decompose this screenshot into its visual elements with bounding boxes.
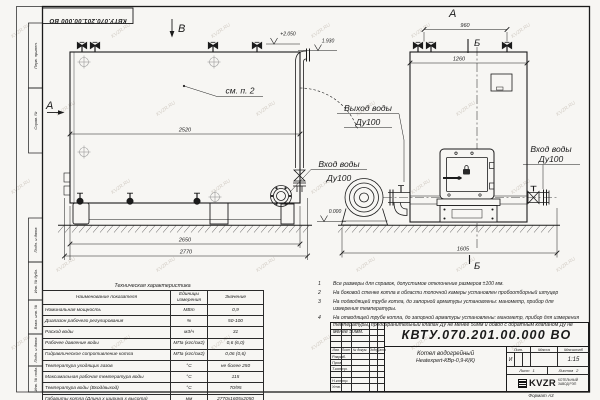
ground-hatch-line <box>177 226 183 233</box>
param-name: Температура уходящих газов <box>43 360 171 371</box>
tech-table-title: Техническая характеристика <box>42 283 263 289</box>
product-model: Heatexpert-КВр-0,9-К(К) <box>385 358 506 364</box>
ground-hatch-line <box>506 226 512 233</box>
center-mark-icon <box>78 146 91 159</box>
logo-text: KVZR <box>529 378 556 389</box>
sheet-cell: Лист 1 <box>507 367 548 375</box>
ground-hatch-line <box>429 226 435 233</box>
param-unit: °С <box>171 372 208 383</box>
ground-hatch-line <box>219 226 225 233</box>
ground-hatch-line <box>121 226 127 233</box>
ground-hatch-line <box>205 226 211 233</box>
ground-hatch-line <box>86 226 92 233</box>
inlet-front-label-line1: Вход воды <box>530 144 572 154</box>
tech-table: Наименование показателя Единицы измерени… <box>42 290 264 400</box>
elevation-ground-text: 0.000 <box>329 209 342 215</box>
furnace-door <box>440 149 494 199</box>
ground-hatch-line <box>450 226 456 233</box>
boiler-side-view <box>64 42 358 224</box>
ground-hatch-line <box>541 226 547 233</box>
table-row: Диапазон рабочего регулирования%50-100 <box>43 316 264 327</box>
doc-number: КВТУ.070.201.00.000 ВО <box>402 328 572 342</box>
outlet-label-line1: Выход воды <box>344 103 393 113</box>
ground-hatch-line <box>373 226 379 233</box>
lit-cell-3 <box>523 353 531 367</box>
table-row: Габариты котла (Длина х ширина х высота)… <box>43 394 264 400</box>
dim-2650: 2650 <box>178 238 192 244</box>
outlet-pipe <box>293 49 310 193</box>
param-value: не более 250 <box>208 360 264 371</box>
margin-stamps: Перв. примен. Справ. № Подп. и дата Инв.… <box>33 42 38 391</box>
elevation-outlet-text: 1.930 <box>322 39 335 45</box>
ground-hatch-line <box>156 226 162 233</box>
row-prov: Пров. <box>332 360 342 365</box>
param-name: Рабочее давление воды <box>43 338 171 349</box>
grid-line <box>331 329 384 330</box>
param-unit: °С <box>171 383 208 394</box>
sheet-label: Лист <box>519 368 529 373</box>
safety-valve-icon <box>90 42 99 52</box>
dim-2770: 2770 <box>179 250 193 256</box>
note-item: 3 На подводящей трубе котла, до запорной… <box>318 299 580 313</box>
row-utv: Утв. <box>332 384 341 389</box>
inlet-flange <box>271 186 292 207</box>
table-row: Максимальная рабочая температура воды°С1… <box>43 372 264 383</box>
param-unit: мм <box>171 394 208 400</box>
dim-960: 960 <box>460 23 470 29</box>
col-list: Лист <box>341 348 351 352</box>
param-value: 0,06 (0,6) <box>208 349 264 360</box>
view-b-label: В <box>178 23 185 35</box>
ground-hatch-line <box>527 226 533 233</box>
grid-line <box>377 323 378 391</box>
view-a-side-label: А <box>45 100 53 112</box>
ground-hatch-line <box>100 226 106 233</box>
ground-hatch-line <box>534 226 540 233</box>
ground-hatch-line <box>226 226 232 233</box>
ground-hatch-line <box>170 226 176 233</box>
ground-hatch-line <box>457 226 463 233</box>
col-doc: № докум. <box>351 348 369 352</box>
ground-hatch-line <box>149 226 155 233</box>
param-value: 0,6 (6,0) <box>208 338 264 349</box>
inlet-front-label-line2: Ду100 <box>538 154 564 164</box>
grid-line <box>331 371 384 372</box>
ground-hatch-line <box>408 226 414 233</box>
ground-hatch-line <box>114 226 120 233</box>
ground-hatch-line <box>352 226 358 233</box>
note-item: 1 Все размеры для справок, допустимое от… <box>318 281 580 288</box>
ground-hatch-line <box>359 226 365 233</box>
outlet-label-line2: Ду100 <box>355 117 381 127</box>
ground-hatch-line <box>464 226 470 233</box>
param-value: 2770х1605х2050 <box>208 394 264 400</box>
stamp-label: Перв. примен. <box>33 42 38 69</box>
kvzr-logo-icon <box>518 379 527 388</box>
row-razrab: Разраб. <box>332 354 346 359</box>
top-doc-number: КВТУ.070.201.00.000 ВО <box>49 17 127 24</box>
ground-hatch-line <box>485 226 491 233</box>
stamp-label: Взам. инв. № <box>33 304 38 329</box>
doc-number-cell: КВТУ.070.201.00.000 ВО <box>384 323 588 347</box>
safety-valve-icon <box>252 42 261 52</box>
ground-hatch-line <box>282 226 288 233</box>
callouts <box>183 85 580 192</box>
sheets-cell: Листов 2 <box>548 367 589 375</box>
see-note-callout: см. п. 2 <box>226 86 255 96</box>
param-name: Максимальная рабочая температура воды <box>43 372 171 383</box>
safety-valve-icon <box>413 42 422 52</box>
tech-header-unit: Единицы измерения <box>171 291 208 305</box>
ground-hatch-line <box>72 226 78 233</box>
grid-line <box>369 323 370 391</box>
ground-hatch-line <box>261 226 267 233</box>
ground-hatch-line <box>415 226 421 233</box>
company-logo: KVZR КОТЕЛЬНЫЙ ЗАВОД РЭП <box>507 375 589 391</box>
ground-hatch-line <box>499 226 505 233</box>
front-right-nozzle <box>527 186 549 205</box>
col-izm: Изм. <box>331 348 341 352</box>
param-name: Температура воды (Вход/выход) <box>43 383 171 394</box>
param-value: 31 <box>208 327 264 338</box>
company-line2: ЗАВОД РЭП <box>558 383 578 387</box>
ground-hatch-line <box>268 226 274 233</box>
ground-hatch-line <box>184 226 190 233</box>
ground-hatch-line <box>366 226 372 233</box>
support-skids <box>73 203 294 224</box>
ground-hatch-line <box>135 226 141 233</box>
note-text: На боковой стенке котла в области топочн… <box>333 290 580 297</box>
param-name: Диапазон рабочего регулирования <box>43 316 171 327</box>
lit-value: И <box>507 353 515 367</box>
param-unit: МПа (кгс/см2) <box>171 349 208 360</box>
ground-hatch-line <box>471 226 477 233</box>
note-number: 3 <box>318 299 333 313</box>
stamp-label: Подп. и дата <box>33 337 38 363</box>
safety-valve-icon <box>502 42 511 52</box>
col-date: Дата <box>377 348 384 352</box>
blower-fan <box>342 179 388 226</box>
ground-hatch-line <box>387 226 393 233</box>
title-block: Изм. Лист № докум. Подп. Дата Разраб. Пр… <box>330 322 589 392</box>
safety-valve-icon <box>208 42 217 52</box>
param-unit: % <box>171 316 208 327</box>
ground-hatch-line <box>401 226 407 233</box>
ground-hatch-line <box>254 226 260 233</box>
param-value: 115 <box>208 372 264 383</box>
ground-hatch-line <box>289 226 295 233</box>
table-row: Расход водым3/ч31 <box>43 327 264 338</box>
pedestal <box>440 206 497 223</box>
note-text: Все размеры для справок, допустимое откл… <box>333 281 580 288</box>
sheet-value: 1 <box>533 368 535 373</box>
inlet-side-label-line2: Ду100 <box>326 173 352 183</box>
drawing-sheet: KVZR.RUKVZR.RUKVZR.RUKVZR.RUKVZR.RUKVZR.… <box>0 0 600 400</box>
door-sill <box>437 199 500 206</box>
center-mark-icon <box>78 56 91 69</box>
param-name: Габариты котла (Длина х ширина х высота) <box>43 394 171 400</box>
ground-hatch-line <box>345 226 351 233</box>
note-number: 2 <box>318 290 333 297</box>
ground-hatch-line <box>191 226 197 233</box>
ground-hatch-line <box>212 226 218 233</box>
ground-hatch-line <box>380 226 386 233</box>
grid-line <box>331 341 384 342</box>
param-name: Гидравлическое сопротивление котла <box>43 349 171 360</box>
stamp-label: Справ. № <box>33 111 38 130</box>
mass-value <box>531 353 558 367</box>
dim-1605: 1605 <box>457 247 470 253</box>
elevation-marks <box>266 38 346 222</box>
format-note: Формат А3 <box>506 393 576 398</box>
ground-hatch-line <box>128 226 134 233</box>
ground-hatch-line <box>58 226 64 233</box>
front-left-nozzle <box>388 186 410 216</box>
ground-hatch-line <box>548 226 554 233</box>
param-unit: °С <box>171 360 208 371</box>
ground-hatch-line <box>436 226 442 233</box>
ground-hatch-line <box>79 226 85 233</box>
drain-valve-icon <box>194 193 200 204</box>
table-row: Номинальная мощностьМВт0,9 <box>43 305 264 316</box>
control-box <box>491 74 512 91</box>
row-tkontr: Т.контр. <box>332 366 348 371</box>
view-a-top-label: А <box>448 8 456 20</box>
lit-cell-2 <box>515 353 523 367</box>
stamp-label: Инв. № подл. <box>33 367 38 392</box>
ground-hatch-line <box>163 226 169 233</box>
row-nkontr: Н.контр. <box>332 378 348 383</box>
tech-header-row: Наименование показателя Единицы измерени… <box>43 291 264 305</box>
param-value: 70/95 <box>208 383 264 394</box>
center-mark-icon <box>208 56 221 69</box>
safety-valve-icon <box>426 42 435 52</box>
note-item: 2 На боковой стенке котла в области топо… <box>318 290 580 297</box>
stamp-label: Подп. и дата <box>33 227 38 253</box>
dim-1260: 1260 <box>453 57 466 63</box>
tech-header-name: Наименование показателя <box>43 291 171 305</box>
grid-line <box>331 335 384 336</box>
ground-hatch-line <box>513 226 519 233</box>
table-row: Температура уходящих газов°Сне более 250 <box>43 360 264 371</box>
product-name-cell: Котел водогрейный Heatexpert-КВр-0,9-К(К… <box>384 347 506 391</box>
inlet-side-label-line1: Вход воды <box>318 159 360 169</box>
info-cells: Лит. Масса Масштаб И 1:15 Лист 1 Листов … <box>506 347 588 391</box>
center-mark-icon <box>209 191 222 204</box>
sheets-value: 2 <box>576 368 578 373</box>
stamp-label: Инв. № дубл. <box>33 269 38 294</box>
ground-hatch-line <box>338 226 344 233</box>
param-value: 50-100 <box>208 316 264 327</box>
ground-hatch-line <box>107 226 113 233</box>
ground-hatch-line <box>275 226 281 233</box>
table-row: Температура воды (Вход/выход)°С70/95 <box>43 383 264 394</box>
company-name: КОТЕЛЬНЫЙ ЗАВОД РЭП <box>558 379 578 386</box>
ground-hatch-line <box>233 226 239 233</box>
safety-valve-icon <box>77 42 86 52</box>
tech-header-value: Значение <box>208 291 264 305</box>
tech-characteristics: Техническая характеристика Наименование … <box>42 283 263 400</box>
section-b-bottom-label: Б <box>474 261 480 272</box>
ground <box>58 225 560 232</box>
ground-hatch-line <box>394 226 400 233</box>
table-row: Гидравлическое сопротивление котлаМПа (к… <box>43 349 264 360</box>
elevation-top-text: +2.050 <box>280 32 296 38</box>
ground-hatch-line <box>142 226 148 233</box>
section-b-top-label: Б <box>474 38 480 49</box>
ground-hatch-line <box>93 226 99 233</box>
product-name: Котел водогрейный <box>385 351 506 357</box>
param-name: Расход воды <box>43 327 171 338</box>
param-unit: м3/ч <box>171 327 208 338</box>
ground-hatch-line <box>492 226 498 233</box>
ground-hatch-line <box>422 226 428 233</box>
note-text: На подводящей трубе котла, до запорной а… <box>333 299 580 313</box>
dim-2520: 2520 <box>178 128 192 134</box>
ground-hatch-line <box>520 226 526 233</box>
ground-hatch-line <box>443 226 449 233</box>
param-name: Номинальная мощность <box>43 305 171 316</box>
table-row: Рабочее давление водыМПа (кгс/см2)0,6 (6… <box>43 338 264 349</box>
ground-hatch-line <box>198 226 204 233</box>
ground-hatch-line <box>296 226 302 233</box>
col-sign: Подп. <box>369 348 377 352</box>
note-number: 1 <box>318 281 333 288</box>
ground-hatch-line <box>303 226 309 233</box>
scale-value: 1:15 <box>558 353 589 367</box>
param-unit: МПа (кгс/см2) <box>171 338 208 349</box>
param-value: 0,9 <box>208 305 264 316</box>
param-unit: МВт <box>171 305 208 316</box>
ground-hatch-line <box>247 226 253 233</box>
drain-valve-icon <box>127 193 133 204</box>
ground-hatch-line <box>478 226 484 233</box>
ground-hatch-line <box>240 226 246 233</box>
grid-line <box>351 323 352 391</box>
sheets-label: Листов <box>559 368 574 373</box>
